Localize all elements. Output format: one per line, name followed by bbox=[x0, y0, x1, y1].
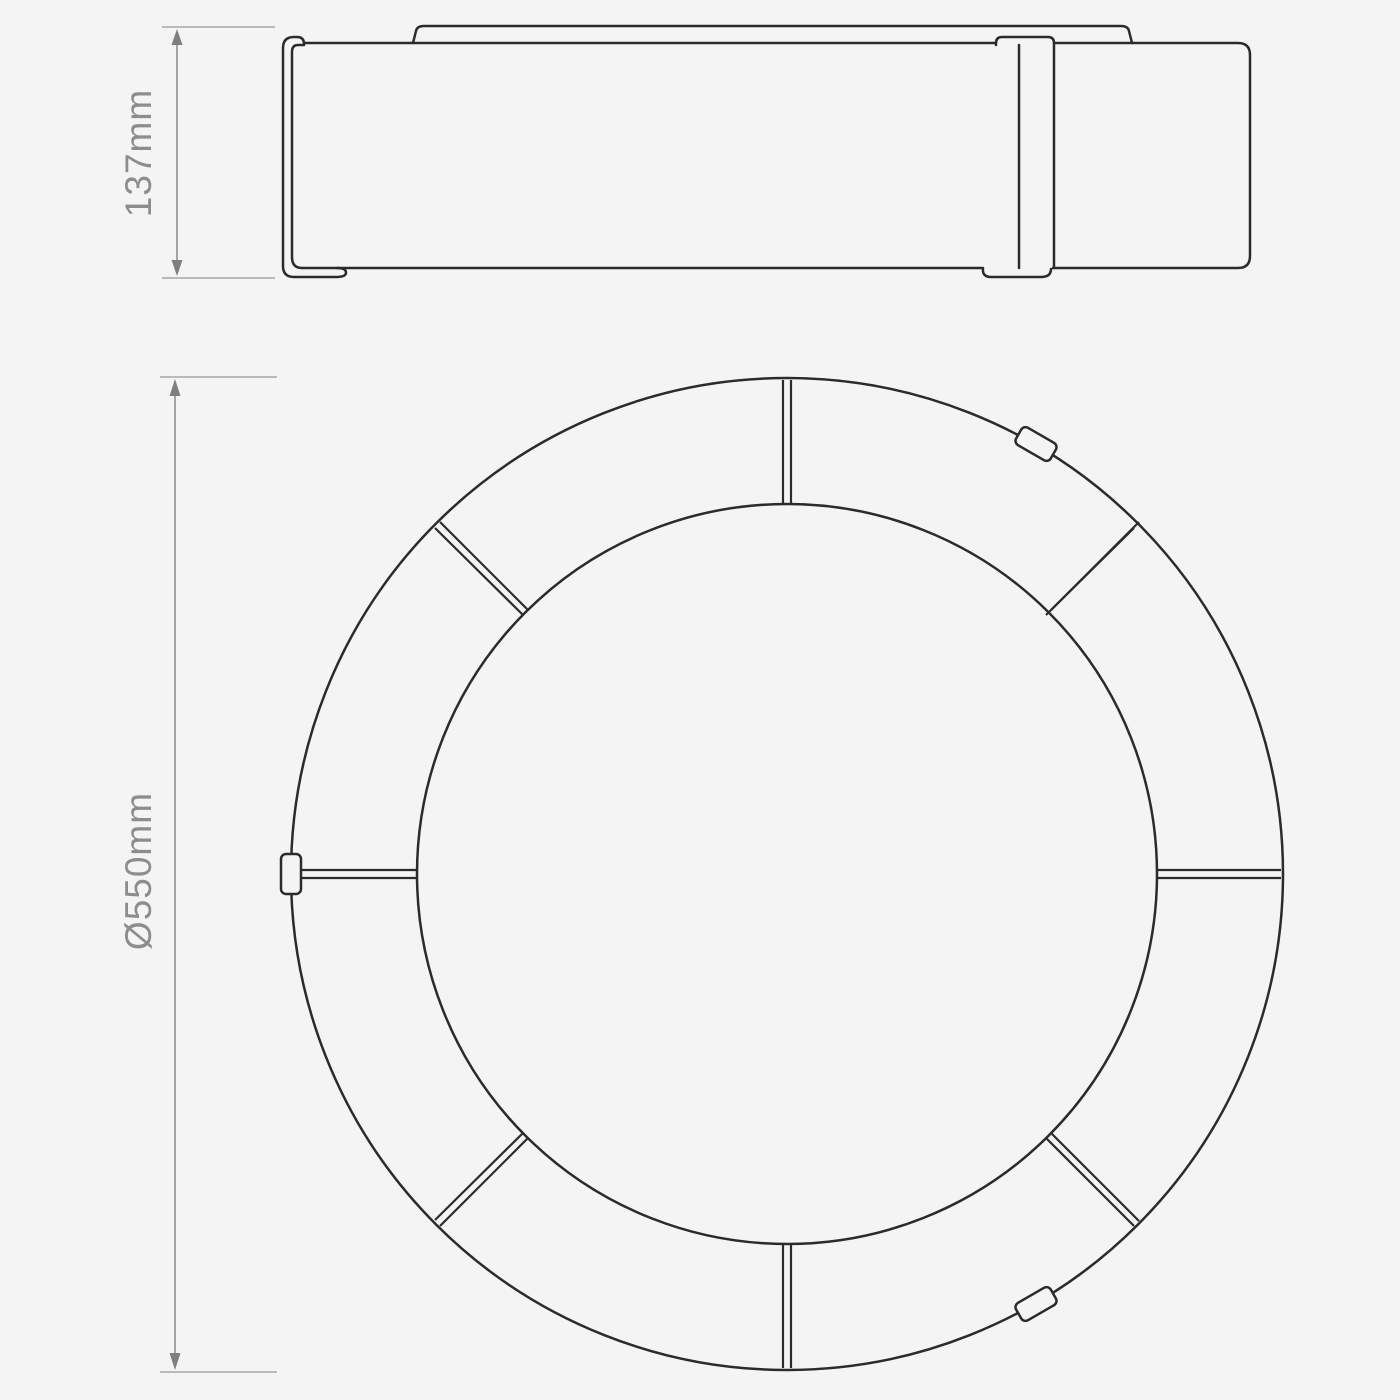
right-clip-top-mask bbox=[995, 39, 1055, 47]
ring-segment-divider-right bbox=[1157, 870, 1281, 878]
diameter-dimension-arrowhead-top bbox=[170, 379, 181, 396]
height-dimension-label: 137mm bbox=[118, 89, 159, 217]
dimension-drawing: 137mm bbox=[0, 0, 1400, 1400]
ring-segment-divider-upper-right bbox=[1046, 522, 1139, 615]
height-dimension-arrowhead-top bbox=[172, 29, 183, 45]
ring-segment-divider-bottom bbox=[783, 1244, 791, 1368]
diffuser-clip-upper-right bbox=[1014, 425, 1059, 462]
right-clip-bottom-mask bbox=[982, 264, 1052, 273]
technical-drawing-canvas: 137mm bbox=[0, 0, 1400, 1400]
side-view-right-clip bbox=[982, 37, 1055, 277]
side-view-left-clip bbox=[283, 37, 346, 277]
diffuser-clip-left bbox=[281, 854, 301, 894]
diffuser-clip-lower-right bbox=[1014, 1285, 1059, 1322]
ring-segment-dividers bbox=[293, 380, 1281, 1368]
side-view bbox=[283, 26, 1250, 277]
plan-view bbox=[281, 378, 1283, 1370]
side-view-left-clip-inner bbox=[292, 45, 304, 268]
height-dimension-arrowhead-bottom bbox=[172, 260, 183, 276]
ring-segment-divider-left bbox=[293, 870, 417, 878]
side-view-body bbox=[302, 43, 1250, 268]
diameter-dimension-label: Ø550mm bbox=[118, 792, 159, 950]
diameter-dimension-arrowhead-bottom bbox=[170, 1353, 181, 1370]
diameter-dimension: Ø550mm bbox=[118, 377, 277, 1372]
height-dimension: 137mm bbox=[118, 27, 275, 278]
diffuser-clips bbox=[281, 425, 1058, 1322]
ring-segment-divider-upper-left bbox=[435, 522, 528, 615]
ring-segment-divider-top bbox=[783, 380, 791, 504]
ring-segment-divider-lower-right bbox=[1046, 1133, 1139, 1226]
ring-segment-divider-lower-left bbox=[435, 1133, 528, 1226]
